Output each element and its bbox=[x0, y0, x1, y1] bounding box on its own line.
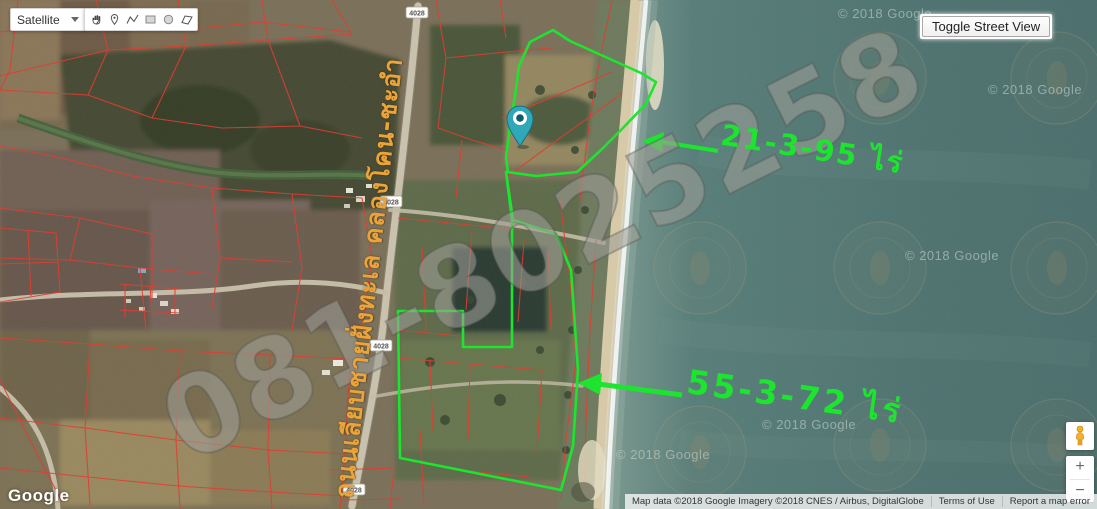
drawing-toolbar bbox=[84, 8, 198, 31]
street-view-toggle-wrap: Toggle Street View bbox=[920, 14, 1052, 39]
polygon-icon bbox=[180, 13, 193, 26]
circle-tool[interactable] bbox=[159, 10, 177, 29]
hand-icon bbox=[90, 13, 103, 26]
route-shield-label: 4028 bbox=[383, 200, 399, 207]
route-shield-label: 4028 bbox=[346, 488, 362, 495]
zoom-in-button[interactable]: + bbox=[1066, 456, 1094, 479]
image-grain bbox=[0, 0, 1097, 509]
pegman-control[interactable] bbox=[1066, 422, 1094, 450]
route-shield-label: 4028 bbox=[373, 344, 389, 351]
route-shield-label: 4028 bbox=[409, 11, 425, 18]
map-data-attribution: Map data ©2018 Google Imagery ©2018 CNES… bbox=[625, 496, 931, 507]
terms-of-use-link[interactable]: Terms of Use bbox=[939, 496, 995, 507]
attribution-bar: Map data ©2018 Google Imagery ©2018 CNES… bbox=[625, 494, 1097, 509]
pan-hand-tool[interactable] bbox=[87, 10, 105, 29]
google-logo[interactable]: Google bbox=[8, 486, 70, 506]
satellite-map-canvas[interactable]: 4028 4028 4028 4028 bbox=[0, 0, 1097, 509]
terms-cell: Terms of Use bbox=[931, 496, 1002, 507]
map-data-text: Map data ©2018 Google bbox=[632, 496, 736, 507]
polyline-icon bbox=[126, 13, 139, 26]
imagery-text: Imagery ©2018 CNES / Airbus, DigitalGlob… bbox=[738, 496, 923, 507]
report-map-error-link[interactable]: Report a map error bbox=[1010, 496, 1090, 507]
marker-tool[interactable] bbox=[105, 10, 123, 29]
report-error-cell: Report a map error bbox=[1002, 496, 1097, 507]
chevron-down-icon bbox=[71, 17, 79, 22]
polyline-tool[interactable] bbox=[123, 10, 141, 29]
circle-icon bbox=[162, 13, 175, 26]
pegman-icon bbox=[1072, 425, 1088, 447]
polygon-tool[interactable] bbox=[177, 10, 195, 29]
marker-icon bbox=[108, 13, 121, 26]
map-type-dropdown[interactable]: Satellite bbox=[10, 8, 86, 31]
map-viewport: 4028 4028 4028 4028 081-8025258 ถนนเลียบ… bbox=[0, 0, 1097, 509]
rectangle-icon bbox=[144, 13, 157, 26]
rectangle-tool[interactable] bbox=[141, 10, 159, 29]
toggle-street-view-button[interactable]: Toggle Street View bbox=[922, 16, 1050, 37]
map-type-label: Satellite bbox=[17, 13, 60, 27]
